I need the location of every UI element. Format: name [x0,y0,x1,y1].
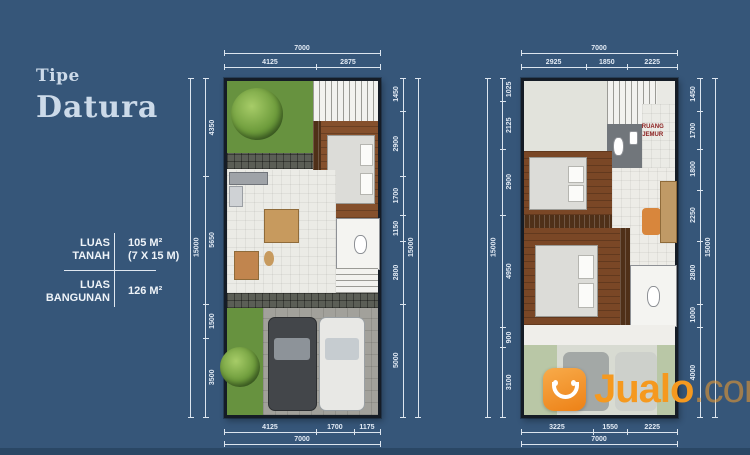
dim-segment: 2925 [521,55,586,68]
dim-segment: 2875 [316,55,380,68]
bed [529,157,587,210]
living-dining-area [227,170,336,294]
dim-tick [203,417,209,418]
chair-orange [642,208,662,235]
void-roof-area [524,81,607,151]
dim-segment: 2250 [686,190,701,241]
wardrobe [524,215,618,228]
dim-label: 2875 [316,59,380,66]
dim-label: 7000 [224,45,380,52]
spec-value-line: 105 M² [128,237,192,250]
dim-label: 1800 [686,149,701,190]
dim-label: 7000 [521,45,677,52]
dim-label: 1450 [686,78,701,111]
luas-bangunan-value: 126 M² [119,272,192,312]
dim-label: 4125 [224,59,316,66]
dim-label: 2225 [627,424,677,431]
dim-label: 3500 [205,338,220,417]
dim-segment: 2800 [686,241,701,304]
dim-label: 1700 [316,424,354,431]
dim-tick [380,64,381,70]
dim-left-segments: 1025 2125 2900 4950 900 3100 [502,78,517,418]
toilet [613,137,623,155]
dim-left-segments: 4350 5650 1500 3500 [205,78,220,418]
spec-divider-horizontal [64,270,156,271]
dim-segment: 7000 [224,432,380,445]
dim-tick [485,417,491,418]
master-bedroom [524,228,630,325]
dim-top-segments: 4125 2875 [224,55,381,68]
room-label-ruang-jemur: RUANG JEMUR [636,124,670,138]
jualo-watermark: Jualo.com [543,368,750,411]
watermark-brand: Jualo [594,367,693,411]
dim-right-segments: 1450 2900 1700 1150 2800 5000 [389,78,404,418]
dim-label: 3225 [521,424,593,431]
toilet [647,286,660,307]
dim-segment: 2900 [389,111,404,177]
dim-label: 1175 [354,424,380,431]
spec-label-line: BANGUNAN [22,292,110,305]
carport [227,308,378,415]
dim-label: 2225 [627,59,677,66]
dim-segment: 1450 [389,78,404,111]
desk [660,181,677,243]
dim-segment: 1025 [502,78,517,101]
toilet [354,235,367,254]
pillow [360,173,372,195]
dim-segment: 15000 [404,78,419,417]
dim-tick [380,441,381,447]
dim-label: 1450 [389,78,404,111]
dim-label: 7000 [224,436,380,443]
flyer-canvas: Tipe Datura LUAS TANAH 105 M² (7 X 15 M)… [0,0,750,455]
car-windshield [274,338,310,360]
dim-label: 4125 [224,424,316,431]
house-type-name: Datura [36,90,158,125]
dim-segment: 4950 [502,215,517,327]
dim-tick [415,417,421,418]
dim-segment: 1500 [205,304,220,338]
dim-top-segments: 2925 1850 2225 [521,55,678,68]
dim-segment: 1150 [389,215,404,241]
luas-bangunan-label: LUAS BANGUNAN [22,272,119,312]
dim-segment: 1800 [686,149,701,190]
dim-label: 5000 [389,304,404,417]
dim-top-total: 7000 [521,41,678,54]
dim-left-total: 15000 [487,78,501,418]
jualo-logo-icon [543,368,586,411]
pillow [578,283,593,307]
dim-tick [712,417,718,418]
dim-label: 1000 [686,304,701,327]
pillow [568,166,583,183]
dim-segment: 7000 [521,432,677,445]
dim-segment: 4350 [205,78,220,176]
kitchen-counter [229,172,268,185]
car-dark [268,317,317,411]
dim-segment: 1450 [686,78,701,111]
pillow [568,185,583,202]
luas-tanah-value: 105 M² (7 X 15 M) [119,230,192,270]
car-windshield [325,338,358,360]
dim-tick [500,417,506,418]
type-label: Tipe [36,66,158,86]
terrace-pavers [227,153,313,170]
spec-label-line: TANAH [22,250,110,263]
stairs [313,81,378,122]
dim-label: 1150 [389,215,404,241]
dim-segment: 900 [502,327,517,347]
luas-tanah-label: LUAS TANAH [22,230,119,270]
dining-table [264,209,299,243]
dim-tick [188,417,194,418]
dim-segment: 2125 [502,101,517,149]
footer-band [0,448,750,455]
dim-right-total: 15000 [404,78,419,418]
watermark-text: Jualo.com [594,368,750,411]
sofa [234,251,260,280]
dim-segment: 1850 [586,55,627,68]
ground-floor-plan [224,78,381,418]
logo-smile [552,382,579,399]
bed [535,245,598,317]
dim-segment: 7000 [224,41,380,54]
side-garden [227,308,263,415]
spec-label-line: LUAS [22,279,110,292]
dim-tick [677,64,678,70]
tree [220,347,260,387]
dim-label: 1025 [502,78,517,101]
dim-bottom-total: 7000 [521,432,678,445]
dim-label: 2250 [686,190,701,241]
dim-label: 7000 [521,436,677,443]
dim-label: 3100 [502,347,517,417]
dim-label: 2925 [521,59,586,66]
dim-segment: 7000 [521,41,677,54]
dim-label: 1500 [205,304,220,338]
pouf [264,251,274,266]
dim-label: 2800 [389,241,404,304]
dim-segment: 4125 [224,55,316,68]
balcony-walkway [524,325,675,345]
pillow [578,255,593,279]
tree [231,88,283,140]
dim-tick [677,441,678,447]
dim-label: 2125 [502,101,517,149]
dim-left-total: 15000 [190,78,204,418]
dim-label: 1700 [389,176,404,214]
dim-label: 1550 [593,424,628,431]
dim-segment: 15000 [487,78,501,417]
dim-label: 900 [502,327,517,347]
dim-label: 1850 [586,59,627,66]
spec-row-tanah: LUAS TANAH 105 M² (7 X 15 M) [22,230,192,270]
fridge [229,186,243,208]
dim-label: 2800 [686,241,701,304]
bathroom-master [630,265,677,327]
dim-label: 15000 [190,78,204,417]
bathroom [336,218,380,270]
dim-segment: 3100 [502,347,517,417]
dim-segment: 2800 [389,241,404,304]
dim-segment: 1700 [686,111,701,149]
driveway-pavers [227,293,378,308]
dim-label: 4950 [502,215,517,327]
dim-label: 2900 [389,111,404,177]
dim-label: 2900 [502,149,517,215]
dim-segment: 1700 [389,176,404,214]
dim-segment: 1000 [686,304,701,327]
spec-label-line: LUAS [22,237,110,250]
dim-segment: 5650 [205,176,220,304]
dim-segment: 2225 [627,55,677,68]
dim-segment: 3500 [205,338,220,417]
wardrobe [620,228,630,325]
watermark-suffix: .com [693,367,750,411]
dim-segment: 15000 [190,78,204,417]
dim-top-total: 7000 [224,41,381,54]
dim-label: 1700 [686,111,701,149]
car-light [319,317,365,411]
spec-value-line: 126 M² [128,285,192,298]
dim-segment: 2900 [502,149,517,215]
title-block: Tipe Datura [36,66,158,125]
dim-label: 15000 [404,78,419,417]
dim-label: 15000 [487,78,501,417]
spec-row-bangunan: LUAS BANGUNAN 126 M² [22,272,192,312]
pillow [360,144,372,166]
spec-block: LUAS TANAH 105 M² (7 X 15 M) LUAS BANGUN… [22,230,192,310]
dim-label: 4350 [205,78,220,176]
spec-value-line: (7 X 15 M) [128,250,192,263]
dim-segment: 5000 [389,304,404,417]
bedroom-2 [524,151,612,214]
dim-label: 5650 [205,176,220,304]
dim-bottom-total: 7000 [224,432,381,445]
